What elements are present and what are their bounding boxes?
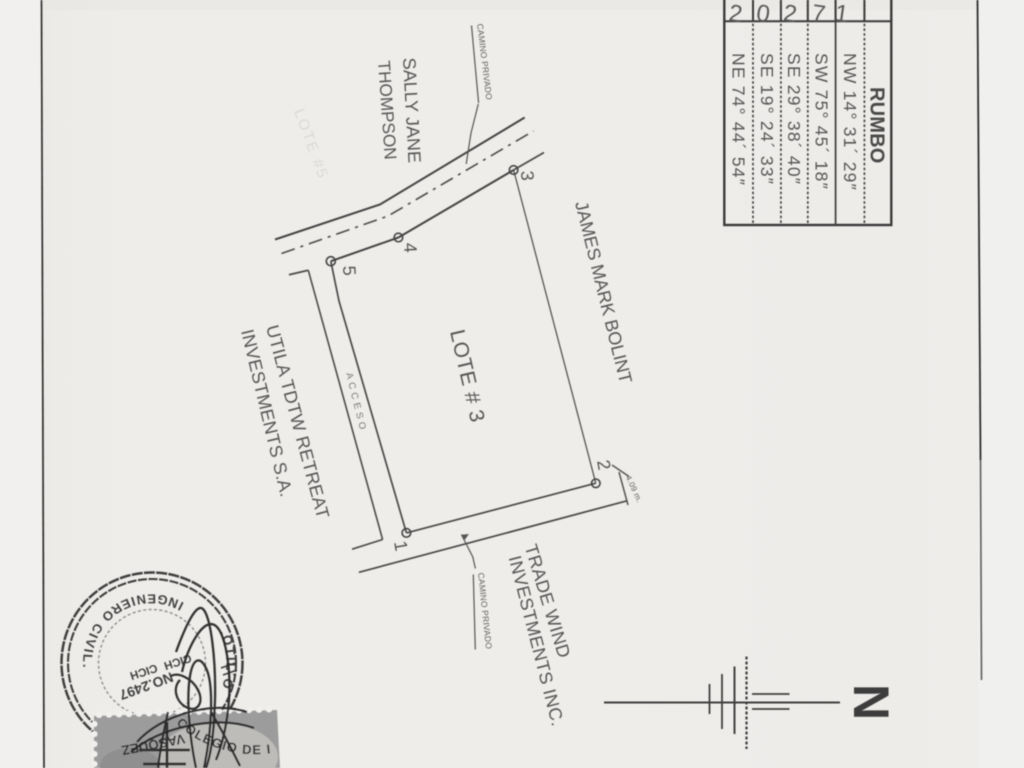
svg-text:NW 14° 31´ 29″: NW 14° 31´ 29″: [840, 53, 860, 191]
svg-text:3: 3: [517, 170, 537, 181]
svg-text:5: 5: [339, 265, 359, 276]
svg-text:SE 19° 24´ 33″: SE 19° 24´ 33″: [757, 53, 777, 185]
svg-text:SW 75° 45´ 18″: SW 75° 45´ 18″: [812, 53, 832, 190]
svg-text:NE 74° 44´ 54″: NE 74° 44´ 54″: [729, 53, 749, 186]
svg-text:N: N: [843, 684, 899, 720]
svg-text:SE 29° 38´ 40″: SE 29° 38´ 40″: [784, 53, 804, 185]
svg-text:RUMBO: RUMBO: [866, 87, 888, 164]
svg-text:4: 4: [400, 242, 420, 253]
